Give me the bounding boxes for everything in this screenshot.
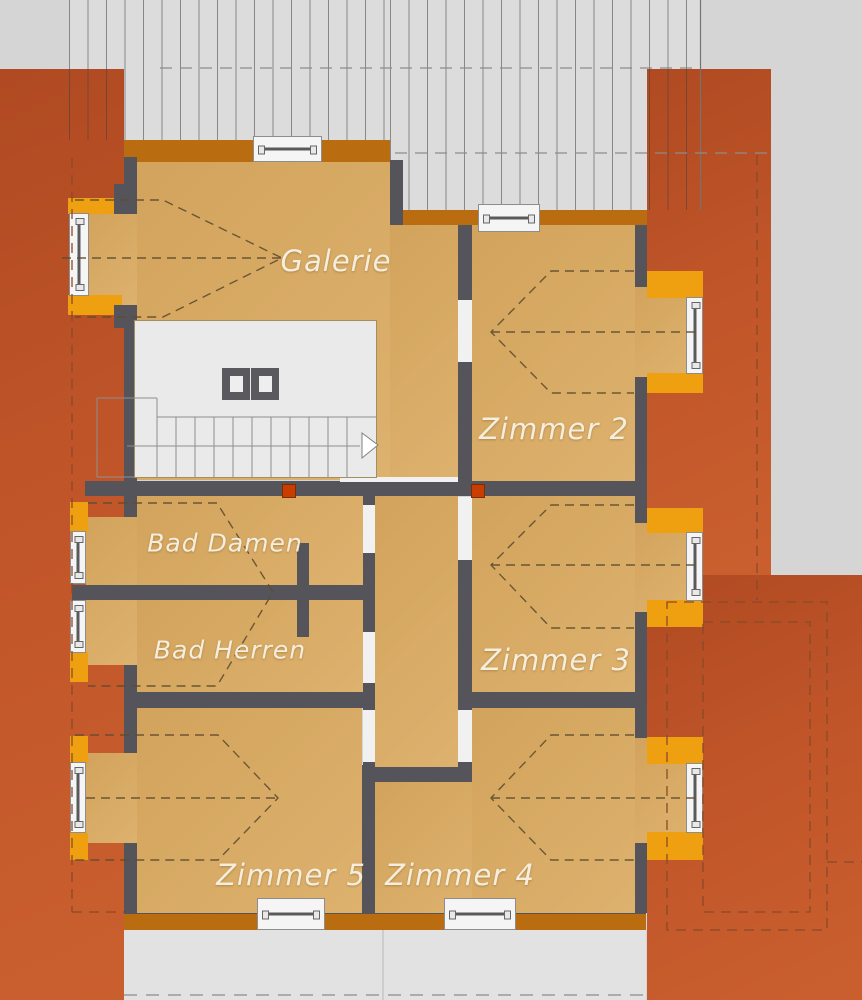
window (257, 898, 325, 930)
wall (635, 377, 647, 481)
wall (124, 692, 375, 708)
dormer-frame (647, 600, 703, 627)
dormer-frame (647, 373, 703, 393)
wall (635, 843, 647, 913)
wall (363, 496, 375, 505)
room-label-zimmer-4: Zimmer 4 (385, 858, 535, 892)
wall-bath-divider (72, 585, 363, 600)
chimney-flue (259, 376, 272, 392)
dormer-frame (70, 833, 88, 860)
window (69, 213, 89, 296)
window (253, 136, 322, 162)
wall (114, 184, 124, 214)
wall (458, 560, 472, 710)
dormer-frame (647, 271, 703, 298)
window (686, 532, 703, 601)
window (686, 763, 703, 833)
wall (458, 225, 472, 300)
dormer-frame (647, 737, 703, 764)
wall (124, 708, 137, 753)
wall (124, 157, 137, 214)
room-floor-corridor (375, 496, 458, 767)
room-floor-hall-step (390, 225, 458, 481)
door-opening-zimmer5 (363, 710, 375, 762)
room-label-galerie: Galerie (281, 244, 392, 278)
door-opening-bad-herren (363, 632, 375, 683)
roof-hatch-lines-right (390, 0, 700, 210)
dormer-frame (647, 508, 703, 533)
wall (635, 612, 647, 692)
wall (124, 843, 137, 913)
window (70, 531, 86, 584)
door-marker (282, 484, 296, 498)
room-label-zimmer-2: Zimmer 2 (479, 412, 629, 446)
roof-hatch-lines-left (69, 0, 390, 140)
wall (458, 362, 472, 481)
wall (375, 767, 472, 782)
bay-floor-galerie (89, 213, 137, 305)
wall (390, 160, 403, 225)
wall (635, 708, 647, 738)
window (70, 600, 86, 653)
dormer-frame (70, 652, 88, 682)
exterior-wall-band-top-left (124, 140, 377, 162)
room-label-zimmer-5: Zimmer 5 (216, 858, 366, 892)
wall (635, 496, 647, 523)
bay-floor-zimmer2 (635, 287, 686, 377)
floor-plan: Galerie Zimmer 2 Zimmer 3 Bad Damen Bad … (0, 0, 862, 1000)
wall (635, 225, 647, 287)
room-label-zimmer-3: Zimmer 3 (481, 643, 631, 677)
lower-roof-strip (124, 930, 646, 1000)
wall (363, 553, 375, 632)
wall (458, 692, 647, 708)
door-marker (471, 484, 485, 498)
window (686, 297, 703, 374)
dormer-frame (70, 736, 88, 763)
window (478, 204, 540, 232)
door-opening-zimmer2 (458, 300, 472, 362)
bay-floor-zimmer3 (635, 523, 686, 612)
dormer-frame (647, 832, 703, 860)
bay-floor-zimmer5 (86, 753, 137, 843)
room-floor-zimmer4-left (375, 782, 472, 913)
door-opening-zimmer4 (458, 710, 472, 762)
chimney-flue (230, 376, 243, 392)
exterior-wall-band-bottom (124, 913, 646, 930)
room-label-bad-damen: Bad Damen (147, 529, 302, 558)
door-opening-zimmer3 (458, 497, 472, 560)
dormer-frame (70, 502, 88, 532)
wall-main-horizontal (85, 481, 647, 496)
window (70, 762, 86, 833)
window (444, 898, 516, 930)
room-label-bad-herren: Bad Herren (154, 636, 306, 665)
door-opening-bad-damen (363, 505, 375, 553)
